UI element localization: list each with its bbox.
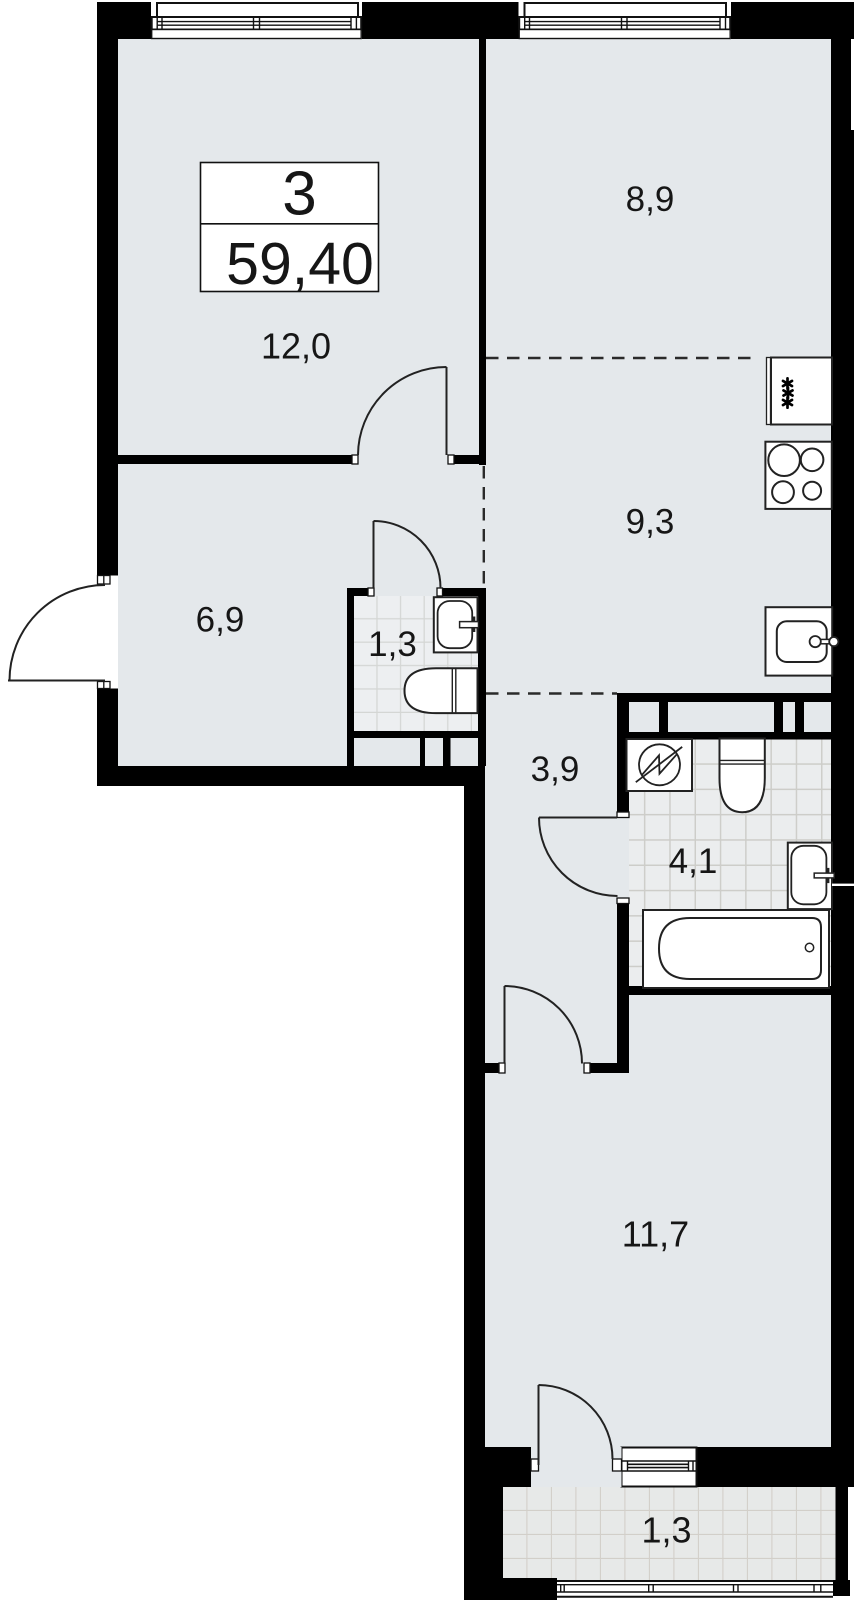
svg-text:11,7: 11,7 <box>622 1214 689 1255</box>
svg-text:59,40: 59,40 <box>226 231 374 297</box>
svg-text:1,3: 1,3 <box>641 1510 691 1551</box>
svg-text:3: 3 <box>282 160 316 229</box>
svg-text:1,3: 1,3 <box>368 625 417 664</box>
svg-text:4,1: 4,1 <box>669 842 718 881</box>
svg-text:3,9: 3,9 <box>531 750 580 789</box>
svg-text:8,9: 8,9 <box>626 180 675 219</box>
svg-text:6,9: 6,9 <box>196 601 245 640</box>
svg-text:12,0: 12,0 <box>261 326 331 367</box>
svg-text:9,3: 9,3 <box>626 503 675 542</box>
